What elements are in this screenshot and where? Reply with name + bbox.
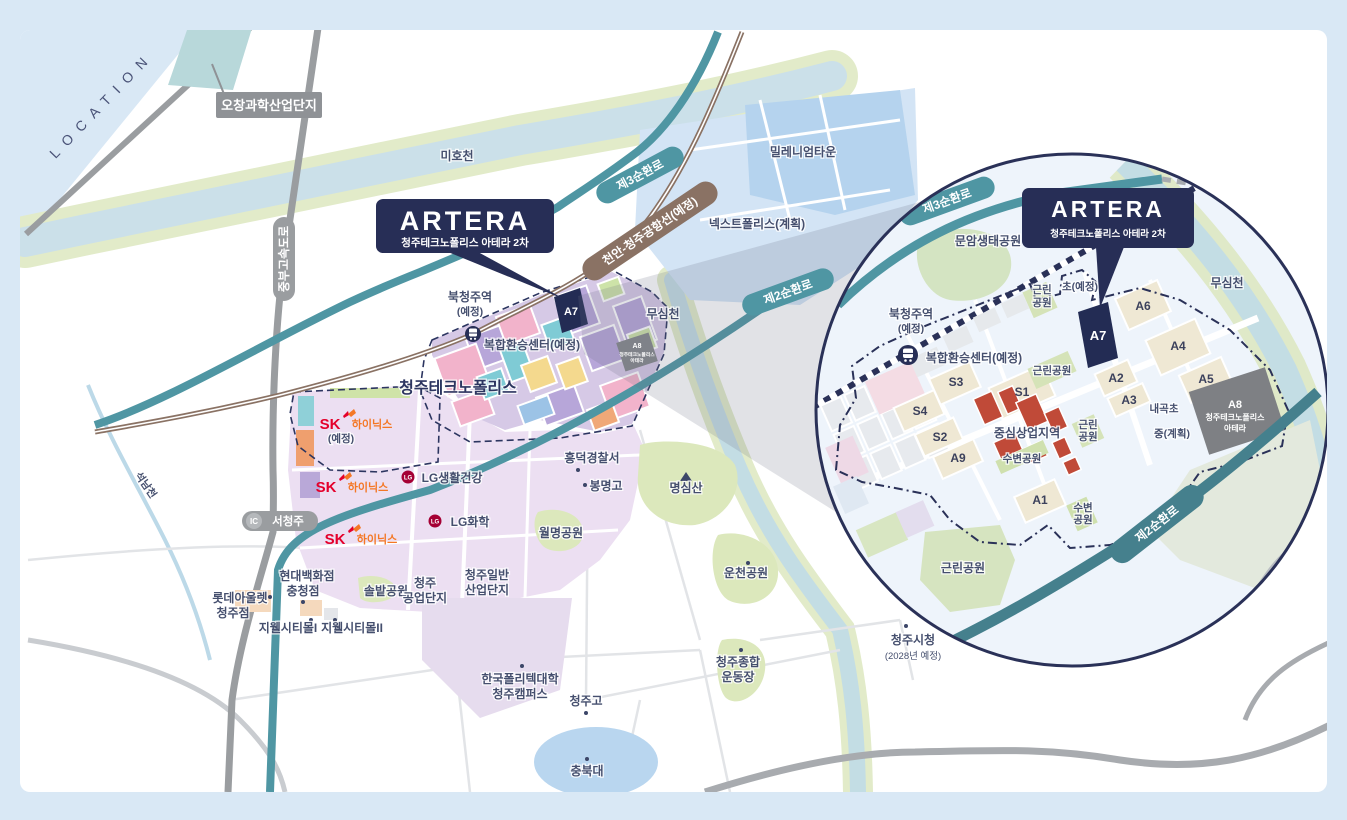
sk-logo-text: SK bbox=[325, 531, 346, 548]
sk-logo-text: SK bbox=[316, 479, 337, 496]
hyundai-dept-label2: 충청점 bbox=[286, 583, 319, 598]
block-a3: A3 bbox=[1121, 393, 1137, 407]
lg-chem-label: LG LG화학 bbox=[429, 514, 490, 529]
chungbuk-univ-area bbox=[534, 727, 658, 797]
seocheongju-ic-badge: IC 서청주 bbox=[242, 511, 318, 531]
jiwell-mall1-label: 지웰시티몰I bbox=[259, 620, 318, 635]
main-brand-subtitle: 청주테크노폴리스 아테라 2차 bbox=[401, 236, 529, 249]
lg-logo-text: LG bbox=[431, 520, 440, 526]
site-a8-sub2-main: 아테라 bbox=[630, 357, 644, 364]
millennium-town-label: 밀레니엄타운 bbox=[770, 144, 836, 159]
bukcheongju-planned-label: (예정) bbox=[457, 305, 483, 318]
inset-greenpark-bottom: 근린공원 bbox=[941, 560, 985, 575]
block-s1: S1 bbox=[1015, 385, 1030, 399]
technopolis-label: 청주테크노폴리스 bbox=[399, 378, 517, 397]
jungbu-expressway-label: 중부고속도로 bbox=[277, 226, 291, 292]
mihocheon-label: 미호천 bbox=[440, 148, 473, 163]
polytech-label2: 청주캠퍼스 bbox=[492, 686, 547, 701]
city-hall-note: (2028년 예정) bbox=[885, 651, 941, 662]
inset-a8-sub2: 아테라 bbox=[1224, 423, 1247, 433]
inset-green2b: 공원 bbox=[1078, 430, 1097, 443]
polytech-label1: 한국폴리텍대학 bbox=[481, 671, 558, 686]
inset-brand-name: ARTERA bbox=[1051, 196, 1165, 222]
block-s2: S2 bbox=[933, 430, 948, 444]
lg-chem-text: LG화학 bbox=[451, 514, 490, 529]
inset-a8-code: A8 bbox=[1228, 399, 1242, 411]
lg-household-text: LG생활건강 bbox=[422, 470, 483, 485]
ic-icon: IC bbox=[250, 517, 258, 526]
block-a2: A2 bbox=[1108, 371, 1124, 385]
heungdeok-police-label: 흥덕경찰서 bbox=[564, 450, 619, 465]
block-a4: A4 bbox=[1170, 339, 1186, 353]
inset-waterside2a: 수변 bbox=[1073, 501, 1092, 514]
stadium-label2: 운동장 bbox=[721, 669, 754, 684]
cheongju-industrial-label2: 공업단지 bbox=[403, 590, 447, 605]
hyundai-dept-label1: 현대백화점 bbox=[279, 568, 334, 583]
city-hall-label: 청주시청 bbox=[891, 632, 935, 647]
main-brand-name: ARTERA bbox=[400, 206, 531, 236]
inset-green1a: 근린 bbox=[1032, 283, 1051, 296]
block-s4: S4 bbox=[913, 404, 928, 418]
block-a1: A1 bbox=[1032, 493, 1048, 507]
inset-green1b: 공원 bbox=[1032, 296, 1051, 309]
sk-hynix-text: 하이닉스 bbox=[352, 417, 392, 431]
block-a9: A9 bbox=[950, 451, 966, 465]
inset-train-icon bbox=[898, 345, 918, 365]
block-a5: A5 bbox=[1198, 372, 1214, 386]
map-canvas: LOCATION 오창과학산업단지 미호천 무심천 석남천 중부고속도로 제3순… bbox=[0, 0, 1347, 820]
myeongsim-mt-label: 명심산 bbox=[669, 480, 702, 495]
general-industrial-label1: 청주일반 bbox=[465, 567, 509, 582]
ochang-badge-label: 오창과학산업단지 bbox=[221, 98, 317, 113]
waterside-park-label: 수변공원 bbox=[1003, 452, 1042, 465]
solbat-park-label: 솔밭공원 bbox=[364, 583, 408, 598]
block-a7: A7 bbox=[1090, 328, 1107, 343]
inset-waterside2b: 공원 bbox=[1073, 513, 1092, 526]
uncheon-park-label: 운천공원 bbox=[724, 565, 768, 580]
wolmyeong-park-label: 월명공원 bbox=[539, 525, 583, 540]
inset-musimcheon-label: 무심천 bbox=[1210, 275, 1243, 290]
stadium-label1: 청주종합 bbox=[716, 654, 760, 669]
sk-hynix-text: 하이닉스 bbox=[348, 480, 388, 494]
inset-elem-planned: 초(예정) bbox=[1062, 280, 1098, 293]
bongmyeong-hs-label: 봉명고 bbox=[589, 479, 622, 493]
transfer-center-label: 복합환승센터(예정) bbox=[484, 337, 580, 352]
inset-transfer-label: 복합환승센터(예정) bbox=[926, 350, 1022, 365]
location-map-page: LOCATION 오창과학산업단지 미호천 무심천 석남천 중부고속도로 제3순… bbox=[0, 0, 1347, 820]
inset-greenpark-right: 근린공원 bbox=[1033, 364, 1072, 377]
jungbu-expressway-badge: 중부고속도로 bbox=[273, 217, 295, 301]
general-industrial-label2: 산업단지 bbox=[465, 582, 509, 597]
sk-note-text: (예정) bbox=[328, 432, 354, 445]
site-a8-code-main: A8 bbox=[633, 343, 642, 350]
middle-planned-label: 중(계획) bbox=[1154, 427, 1190, 440]
bukcheongju-station-label: 북청주역 bbox=[448, 289, 492, 304]
cheongju-industrial-label1: 청주 bbox=[414, 575, 436, 590]
lotte-outlet-label1: 롯데아울렛 bbox=[212, 590, 267, 605]
seocheongju-ic-label: 서청주 bbox=[272, 514, 304, 528]
lg-logo-text: LG bbox=[404, 476, 413, 482]
inset-station-label: 북청주역 bbox=[889, 306, 933, 321]
sk-logo-text: SK bbox=[320, 416, 341, 433]
lotte-outlet-label2: 청주점 bbox=[216, 605, 249, 620]
cheongju-hs-label: 청주고 bbox=[569, 693, 602, 708]
inset-a8-sub1: 청주테크노폴리스 bbox=[1206, 412, 1266, 422]
naegok-elem-label: 내곡초 bbox=[1150, 402, 1179, 415]
block-a6: A6 bbox=[1135, 299, 1151, 313]
munam-park-label: 문암생태공원 bbox=[955, 233, 1021, 248]
train-station-icon bbox=[465, 326, 481, 342]
inset-green2a: 근린 bbox=[1078, 418, 1097, 431]
sk-hynix-text: 하이닉스 bbox=[357, 532, 397, 546]
chungbuk-univ-label: 충북대 bbox=[570, 763, 603, 778]
ochang-badge: 오창과학산업단지 bbox=[216, 92, 322, 118]
inset-station-planned: (예정) bbox=[898, 322, 924, 335]
central-commercial-label: 중심상업지역 bbox=[994, 425, 1060, 440]
site-a7-label-main: A7 bbox=[564, 306, 578, 318]
block-s3: S3 bbox=[949, 375, 964, 389]
musimcheon-label: 무심천 bbox=[646, 306, 679, 321]
nextpolis-label: 넥스트폴리스(계획) bbox=[709, 216, 805, 231]
inset-brand-subtitle: 청주테크노폴리스 아테라 2차 bbox=[1050, 228, 1166, 240]
site-a8-sub1-main: 청주테크노폴리스 bbox=[619, 351, 655, 358]
jiwell-mall2-label: 지웰시티몰II bbox=[321, 620, 383, 635]
